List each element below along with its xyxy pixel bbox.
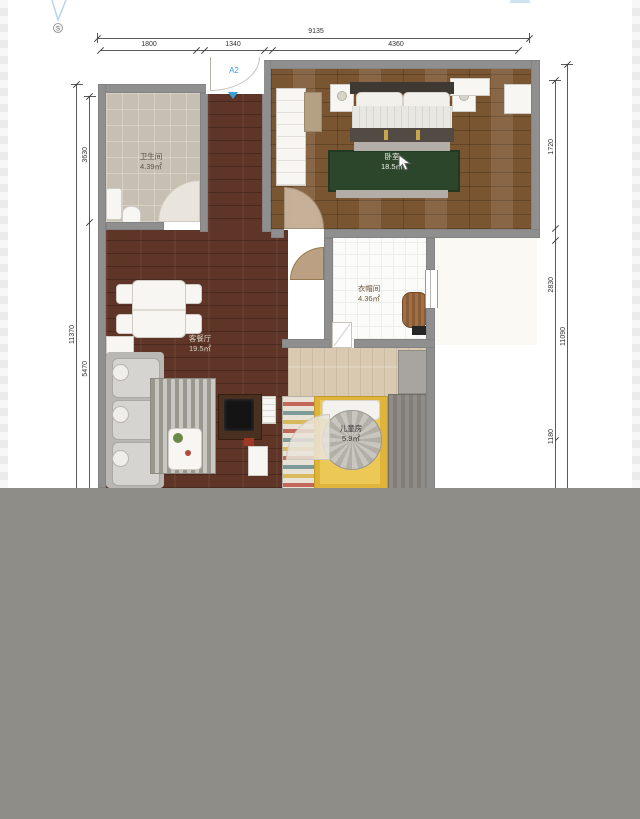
bathroom-sink[interactable] xyxy=(106,188,122,220)
dimension-line xyxy=(97,38,529,39)
decor-red-box xyxy=(244,438,254,446)
dim-top-seg: 1340 xyxy=(212,41,254,48)
dim-right-outer: 11090 xyxy=(560,326,567,347)
dining-table[interactable] xyxy=(132,280,186,338)
window xyxy=(425,270,438,308)
desk[interactable] xyxy=(398,350,428,394)
wall xyxy=(106,222,164,230)
dimension-line xyxy=(89,96,90,488)
room-name: 客餐厅 xyxy=(158,334,242,344)
wall xyxy=(98,84,208,93)
room-area: 19.5㎡ xyxy=(158,344,242,354)
closet-label: 衣帽间 4.36㎡ xyxy=(336,284,402,304)
dimension-line xyxy=(100,50,518,51)
transparency-checker-right xyxy=(632,0,640,488)
door-leaf[interactable] xyxy=(332,322,352,348)
kids-wardrobe[interactable] xyxy=(388,394,430,490)
bedroom-label: 卧室 18.5㎡ xyxy=(348,152,436,172)
entry-door-leaf xyxy=(210,57,211,91)
dim-right-inner: 2830 xyxy=(548,276,555,294)
wall xyxy=(426,238,435,270)
room-area: 4.36㎡ xyxy=(336,294,402,304)
gray-overlay xyxy=(0,488,640,819)
hallway-floor[interactable] xyxy=(208,93,262,232)
transparency-checker-left xyxy=(0,0,8,488)
blue-artifact xyxy=(510,0,530,3)
tv-screen[interactable] xyxy=(224,399,254,431)
compass-icon: S xyxy=(44,0,74,38)
dim-top-total: 9135 xyxy=(295,28,337,35)
sofa-pillow xyxy=(112,450,129,467)
wall xyxy=(262,60,540,69)
dim-right-inner: 1720 xyxy=(548,138,555,156)
bed-bench[interactable] xyxy=(354,142,450,151)
balcony-area xyxy=(435,238,537,345)
bathroom-label: 卫生间 4.39㎡ xyxy=(118,152,184,172)
closet-door-swing[interactable] xyxy=(290,247,324,280)
dim-top-seg: 1800 xyxy=(128,41,170,48)
dim-top-seg: 4360 xyxy=(373,41,419,48)
wall xyxy=(200,93,208,232)
dresser[interactable] xyxy=(304,92,322,132)
wall xyxy=(271,229,284,238)
room-name: 衣帽间 xyxy=(336,284,402,294)
bed-duvet[interactable] xyxy=(352,106,452,130)
wardrobe[interactable] xyxy=(276,88,306,186)
gold-tassel xyxy=(384,130,388,140)
room-area: 18.5㎡ xyxy=(348,162,436,172)
living-room-label: 客餐厅 19.5㎡ xyxy=(158,334,242,354)
decor-item xyxy=(185,450,191,456)
sofa-pillow xyxy=(112,406,129,423)
dim-left-outer: 11370 xyxy=(69,324,76,345)
wall xyxy=(531,60,540,238)
tv-console[interactable] xyxy=(450,78,490,96)
wall xyxy=(426,308,435,490)
svg-text:S: S xyxy=(56,27,60,33)
wall xyxy=(354,339,435,348)
room-name: 卫生间 xyxy=(118,152,184,162)
dimension-line xyxy=(567,64,568,488)
room-name: 卧室 xyxy=(348,152,436,162)
rug-fringe xyxy=(336,190,448,198)
dimension-line xyxy=(76,84,77,488)
dim-left-inner: 5470 xyxy=(82,360,89,378)
lowboard[interactable] xyxy=(248,446,268,476)
side-cabinet[interactable] xyxy=(504,84,532,114)
room-area: 4.39㎡ xyxy=(118,162,184,172)
floorplan-canvas: S 卧室 18.5㎡ 客餐厅 19.5㎡ xyxy=(0,0,640,819)
dim-left-inner: 3630 xyxy=(82,146,89,164)
dim-right-inner: 1180 xyxy=(548,428,555,445)
entry-door-label: A2 xyxy=(222,66,246,75)
entry-arrow-icon xyxy=(228,92,238,99)
gold-tassel xyxy=(416,130,420,140)
wall xyxy=(324,229,540,238)
dimension-line xyxy=(555,80,556,488)
lamp-icon xyxy=(337,91,347,101)
bed-blanket[interactable] xyxy=(350,128,454,142)
plant-icon xyxy=(173,433,183,443)
sofa-pillow xyxy=(112,364,129,381)
wall xyxy=(98,84,106,488)
wall xyxy=(282,339,330,348)
cursor-pointer-icon xyxy=(398,154,412,172)
radiator[interactable] xyxy=(262,396,276,424)
